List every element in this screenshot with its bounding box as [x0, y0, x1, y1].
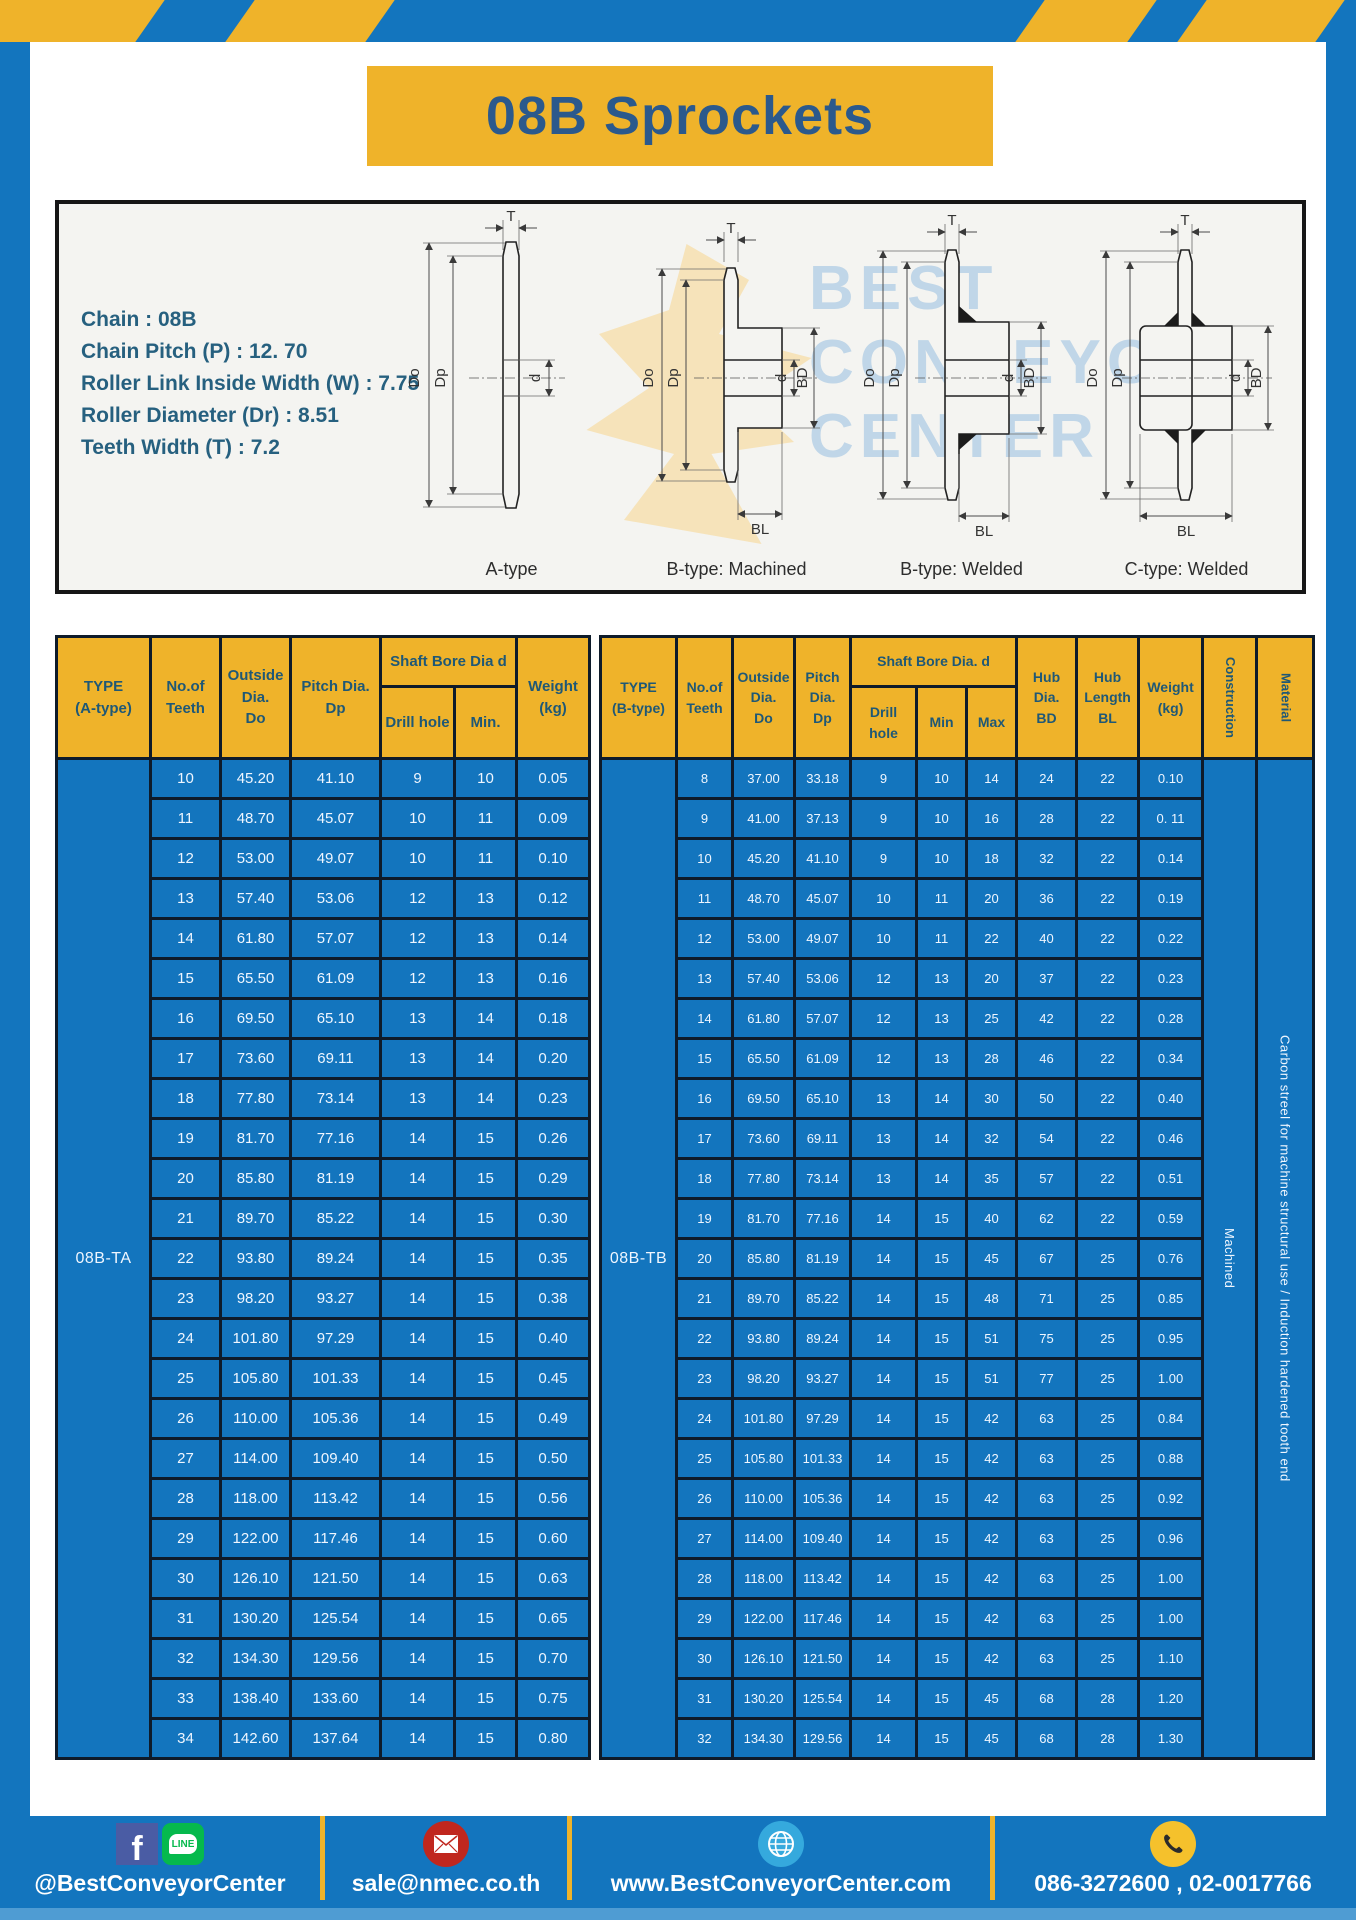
table-cell: 14 [381, 1399, 455, 1439]
table-cell: 14 [455, 1079, 517, 1119]
table-cell: 1.00 [1139, 1599, 1203, 1639]
table-cell: 130.20 [733, 1679, 795, 1719]
table-cell: 27 [151, 1439, 221, 1479]
table-cell: 97.29 [795, 1399, 851, 1439]
table-cell: 22 [1077, 839, 1139, 879]
table-cell: 73.14 [795, 1159, 851, 1199]
table-cell: 63 [1017, 1439, 1077, 1479]
table-cell: 71 [1017, 1279, 1077, 1319]
table-cell: 61.09 [795, 1039, 851, 1079]
table-cell: 33 [151, 1679, 221, 1719]
table-cell: 25 [151, 1359, 221, 1399]
table-cell: 21 [677, 1279, 733, 1319]
table-cell: 0.60 [517, 1519, 590, 1559]
table-cell: 45 [967, 1719, 1017, 1759]
left-frame [0, 42, 30, 1816]
table-cell: 134.30 [221, 1639, 291, 1679]
table-cell: 25 [1077, 1359, 1139, 1399]
table-cell: 137.64 [291, 1719, 381, 1759]
table-cell: 0.23 [517, 1079, 590, 1119]
table-cell: 22 [1077, 1199, 1139, 1239]
table-cell: 63 [1017, 1479, 1077, 1519]
table-cell: 93.80 [221, 1239, 291, 1279]
col-header-teeth: No.of Teeth [151, 637, 221, 759]
table-cell: 42 [1017, 999, 1077, 1039]
table-cell: 0.10 [1139, 759, 1203, 799]
table-cell: 14 [851, 1519, 917, 1559]
table-cell: 134.30 [733, 1719, 795, 1759]
table-cell: 126.10 [221, 1559, 291, 1599]
table-cell: 14 [851, 1679, 917, 1719]
table-cell: 15 [917, 1279, 967, 1319]
table-cell: 42 [967, 1599, 1017, 1639]
table-cell: 0.88 [1139, 1439, 1203, 1479]
phone-numbers[interactable]: 086-3272600 , 02-0017766 [1034, 1870, 1312, 1897]
c-type-welded-diagram: T Do Dp [1074, 210, 1299, 590]
table-cell: 25 [1077, 1599, 1139, 1639]
table-cell: 28 [677, 1559, 733, 1599]
table-cell: 113.42 [795, 1559, 851, 1599]
col-header-outside-dia: Outside Dia. Do [221, 637, 291, 759]
table-cell: 25 [1077, 1319, 1139, 1359]
table-cell: 15 [917, 1199, 967, 1239]
table-cell: 62 [1017, 1199, 1077, 1239]
table-cell: 19 [151, 1119, 221, 1159]
table-cell: 42 [967, 1559, 1017, 1599]
table-cell: 15 [455, 1599, 517, 1639]
table-cell: 37 [1017, 959, 1077, 999]
b-type-welded-diagram: T Do Dp [849, 210, 1074, 590]
table-cell: 121.50 [291, 1559, 381, 1599]
table-cell: 69.11 [291, 1039, 381, 1079]
table-cell: 42 [967, 1439, 1017, 1479]
table-cell: 14 [851, 1439, 917, 1479]
table-cell: 0.40 [1139, 1079, 1203, 1119]
col-header-max: Max [967, 687, 1017, 759]
table-cell: 10 [917, 839, 967, 879]
table-cell: 73.14 [291, 1079, 381, 1119]
table-cell: 14 [677, 999, 733, 1039]
table-row: 08B-TB837.0033.189101424220.10MachinedCa… [601, 759, 1314, 799]
table-cell: 30 [151, 1559, 221, 1599]
table-cell: 0.96 [1139, 1519, 1203, 1559]
table-cell: 13 [455, 879, 517, 919]
table-cell: 20 [967, 879, 1017, 919]
table-cell: 25 [677, 1439, 733, 1479]
table-cell: 113.42 [291, 1479, 381, 1519]
table-cell: 85.80 [221, 1159, 291, 1199]
svg-text:T: T [506, 210, 515, 225]
table-cell: 117.46 [795, 1599, 851, 1639]
table-cell: 14 [381, 1119, 455, 1159]
table-cell: 0.26 [517, 1119, 590, 1159]
table-cell: 15 [455, 1199, 517, 1239]
table-row: 08B-TA1045.2041.109100.05 [57, 759, 590, 799]
table-cell: 13 [381, 1039, 455, 1079]
table-cell: 15 [917, 1639, 967, 1679]
svg-text:T: T [947, 212, 956, 229]
table-cell: 14 [917, 1159, 967, 1199]
col-header-drill-hole: Drill hole [381, 687, 455, 759]
table-cell: 105.36 [795, 1479, 851, 1519]
table-cell: 14 [851, 1239, 917, 1279]
stripe [225, 0, 394, 42]
table-cell: 14 [851, 1559, 917, 1599]
table-cell: 12 [381, 919, 455, 959]
table-cell: 42 [967, 1519, 1017, 1559]
table-cell: 0.45 [517, 1359, 590, 1399]
table-cell: 50 [1017, 1079, 1077, 1119]
table-cell: 15 [455, 1519, 517, 1559]
table-cell: 0.65 [517, 1599, 590, 1639]
table-cell: 77.80 [733, 1159, 795, 1199]
table-cell: 25 [1077, 1519, 1139, 1559]
table-cell: 15 [917, 1319, 967, 1359]
table-cell: 110.00 [221, 1399, 291, 1439]
table-cell: 0.40 [517, 1319, 590, 1359]
table-cell: 22 [151, 1239, 221, 1279]
table-cell: 57 [1017, 1159, 1077, 1199]
social-section: f LINE @BestConveyorCenter [0, 1816, 320, 1908]
table-cell: 15 [455, 1719, 517, 1759]
col-header-min: Min. [455, 687, 517, 759]
table-cell: 26 [677, 1479, 733, 1519]
table-cell: 15 [455, 1159, 517, 1199]
table-cell: 81.70 [733, 1199, 795, 1239]
svg-text:Do: Do [1084, 368, 1101, 387]
table-cell: 110.00 [733, 1479, 795, 1519]
table-cell: 15 [917, 1479, 967, 1519]
svg-text:Dp: Dp [432, 368, 449, 387]
table-cell: 1.00 [1139, 1359, 1203, 1399]
svg-text:d: d [773, 374, 790, 382]
table-cell: 105.36 [291, 1399, 381, 1439]
table-cell: 118.00 [733, 1559, 795, 1599]
table-cell: 65.50 [733, 1039, 795, 1079]
table-cell: 0.30 [517, 1199, 590, 1239]
table-cell: 81.19 [291, 1159, 381, 1199]
table-cell: 12 [851, 999, 917, 1039]
table-cell: 63 [1017, 1399, 1077, 1439]
social-handle[interactable]: @BestConveyorCenter [34, 1870, 285, 1897]
table-cell: 0.70 [517, 1639, 590, 1679]
table-cell: 22 [1077, 759, 1139, 799]
col-header-type: TYPE (A-type) [57, 637, 151, 759]
table-cell: 10 [851, 879, 917, 919]
chain-specs: Chain : 08B Chain Pitch (P) : 12. 70 Rol… [81, 304, 419, 464]
phone-icon [1150, 1821, 1196, 1867]
table-cell: 117.46 [291, 1519, 381, 1559]
table-cell: 37.00 [733, 759, 795, 799]
table-cell: 14 [381, 1159, 455, 1199]
table-cell: 114.00 [733, 1519, 795, 1559]
table-cell: 18 [151, 1079, 221, 1119]
website-url[interactable]: www.BestConveyorCenter.com [611, 1870, 951, 1897]
table-cell: 65.50 [221, 959, 291, 999]
table-cell: 109.40 [291, 1439, 381, 1479]
table-cell: 89.24 [795, 1319, 851, 1359]
table-cell: 138.40 [221, 1679, 291, 1719]
table-cell: 34 [151, 1719, 221, 1759]
table-cell: 26 [151, 1399, 221, 1439]
table-cell: 133.60 [291, 1679, 381, 1719]
table-cell: 22 [967, 919, 1017, 959]
table-cell: 23 [677, 1359, 733, 1399]
table-cell: 14 [381, 1479, 455, 1519]
table-cell: 14 [381, 1359, 455, 1399]
col-header-weight: Weight (kg) [1139, 637, 1203, 759]
table-cell: 14 [381, 1319, 455, 1359]
col-header-type: TYPE (B-type) [601, 637, 677, 759]
diagram-label: B-type: Machined [624, 559, 849, 580]
table-cell: 51 [967, 1359, 1017, 1399]
table-cell: 61.09 [291, 959, 381, 999]
table-cell: 22 [1077, 799, 1139, 839]
table-cell: 0.19 [1139, 879, 1203, 919]
diagram-panel: BEST CONVEYOR CENTER Chain : 08B Chain P… [55, 200, 1306, 594]
table-cell: 31 [677, 1679, 733, 1719]
bottom-strip [0, 1908, 1356, 1920]
page-title: 08B Sprockets [367, 66, 993, 166]
table-cell: 53.00 [733, 919, 795, 959]
table-cell: 81.19 [795, 1239, 851, 1279]
table-cell: 13 [381, 1079, 455, 1119]
table-cell: 42 [967, 1399, 1017, 1439]
table-cell: 10 [917, 799, 967, 839]
table-cell: 14 [381, 1719, 455, 1759]
table-cell: 9 [851, 839, 917, 879]
table-cell: 49.07 [795, 919, 851, 959]
diagram-label: B-type: Welded [849, 559, 1074, 580]
table-cell: 130.20 [221, 1599, 291, 1639]
table-cell: 40 [967, 1199, 1017, 1239]
table-cell: 0.50 [517, 1439, 590, 1479]
table-cell: 14 [455, 1039, 517, 1079]
table-cell: 51 [967, 1319, 1017, 1359]
table-cell: 54 [1017, 1119, 1077, 1159]
svg-text:d: d [527, 374, 544, 382]
stripe [1177, 0, 1344, 42]
table-cell: 0. 11 [1139, 799, 1203, 839]
table-cell: 15 [677, 1039, 733, 1079]
table-cell: 0.51 [1139, 1159, 1203, 1199]
table-cell: 19 [677, 1199, 733, 1239]
table-cell: 15 [455, 1639, 517, 1679]
table-cell: 15 [917, 1599, 967, 1639]
table-cell: 142.60 [221, 1719, 291, 1759]
table-cell: 0.18 [517, 999, 590, 1039]
table-cell: 32 [1017, 839, 1077, 879]
website-section: www.BestConveyorCenter.com [572, 1816, 990, 1908]
svg-text:BD: BD [1021, 367, 1038, 388]
table-cell: 14 [381, 1639, 455, 1679]
table-cell: 0.59 [1139, 1199, 1203, 1239]
table-cell: 129.56 [291, 1639, 381, 1679]
col-header-shaft-bore: Shaft Bore Dia. d [851, 637, 1017, 687]
table-cell: 15 [917, 1559, 967, 1599]
svg-text:Do: Do [640, 368, 657, 387]
svg-text:Dp: Dp [665, 368, 682, 387]
table-cell: 25 [1077, 1399, 1139, 1439]
table-cell: 15 [455, 1279, 517, 1319]
table-cell: 81.70 [221, 1119, 291, 1159]
email-address[interactable]: sale@nmec.co.th [352, 1870, 541, 1897]
table-cell: 42 [967, 1639, 1017, 1679]
table-cell: 41.10 [795, 839, 851, 879]
table-cell: 14 [851, 1399, 917, 1439]
table-cell: 15 [917, 1719, 967, 1759]
table-cell: 69.50 [733, 1079, 795, 1119]
table-cell: 14 [381, 1439, 455, 1479]
table-cell: 28 [1077, 1719, 1139, 1759]
table-cell: 93.27 [291, 1279, 381, 1319]
table-cell: 25 [1077, 1559, 1139, 1599]
a-type-diagram: T Do Dp d [399, 210, 624, 590]
table-cell: 53.00 [221, 839, 291, 879]
table-cell: 36 [1017, 879, 1077, 919]
table-cell: 22 [1077, 1039, 1139, 1079]
table-cell: 14 [917, 1119, 967, 1159]
table-cell: 57.40 [733, 959, 795, 999]
table-cell: 11 [455, 839, 517, 879]
email-section: sale@nmec.co.th [325, 1816, 567, 1908]
table-cell: 14 [851, 1479, 917, 1519]
table-cell: 69.11 [795, 1119, 851, 1159]
table-cell: 14 [851, 1639, 917, 1679]
table-cell: 9 [677, 799, 733, 839]
table-cell: 9 [381, 759, 455, 799]
spec-line: Roller Diameter (Dr) : 8.51 [81, 400, 419, 432]
table-cell: 13 [151, 879, 221, 919]
table-cell: 28 [967, 1039, 1017, 1079]
line-icon[interactable]: LINE [162, 1823, 204, 1865]
col-header-min: Min [917, 687, 967, 759]
table-cell: 114.00 [221, 1439, 291, 1479]
table-cell: 105.80 [221, 1359, 291, 1399]
table-cell: 0.49 [517, 1399, 590, 1439]
table-cell: 17 [151, 1039, 221, 1079]
email-icon [423, 1821, 469, 1867]
table-cell: 25 [967, 999, 1017, 1039]
table-cell: 28 [151, 1479, 221, 1519]
table-cell: 77 [1017, 1359, 1077, 1399]
svg-text:Dp: Dp [886, 368, 903, 387]
table-cell: 0.56 [517, 1479, 590, 1519]
table-cell: 16 [151, 999, 221, 1039]
table-cell: 14 [851, 1599, 917, 1639]
table-cell: 0.09 [517, 799, 590, 839]
table-cell: 20 [677, 1239, 733, 1279]
table-cell: 11 [677, 879, 733, 919]
table-cell: 22 [1077, 999, 1139, 1039]
sprocket-table-b-type: TYPE (B-type) No.of Teeth Outside Dia. D… [599, 635, 1315, 1760]
table-cell: 1.30 [1139, 1719, 1203, 1759]
table-cell: 0.34 [1139, 1039, 1203, 1079]
table-cell: 98.20 [221, 1279, 291, 1319]
facebook-icon[interactable]: f [116, 1823, 158, 1865]
table-cell: 125.54 [291, 1599, 381, 1639]
table-cell: 14 [851, 1359, 917, 1399]
table-cell: 13 [677, 959, 733, 999]
table-cell: 32 [677, 1719, 733, 1759]
table-cell: 93.27 [795, 1359, 851, 1399]
table-cell: 40 [1017, 919, 1077, 959]
svg-text:Do: Do [407, 368, 423, 387]
svg-text:BD: BD [794, 367, 811, 388]
table-cell: 68 [1017, 1679, 1077, 1719]
table-cell: 15 [455, 1679, 517, 1719]
table-cell: 105.80 [733, 1439, 795, 1479]
table-cell: 89.70 [733, 1279, 795, 1319]
table-cell: 10 [851, 919, 917, 959]
col-header-material: Material [1257, 637, 1314, 759]
table-cell: 57.40 [221, 879, 291, 919]
table-cell: 122.00 [733, 1599, 795, 1639]
col-header-weight: Weight (kg) [517, 637, 590, 759]
table-cell: 8 [677, 759, 733, 799]
table-cell: 63 [1017, 1519, 1077, 1559]
table-cell: 15 [455, 1359, 517, 1399]
table-cell: 0.12 [517, 879, 590, 919]
table-cell: 49.07 [291, 839, 381, 879]
table-cell: 65.10 [291, 999, 381, 1039]
col-header-hub-dia: Hub Dia. BD [1017, 637, 1077, 759]
table-cell: 22 [1077, 1159, 1139, 1199]
table-cell: 10 [677, 839, 733, 879]
contact-footer: f LINE @BestConveyorCenter sale@ [0, 1816, 1356, 1908]
table-cell: 29 [151, 1519, 221, 1559]
spec-line: Roller Link Inside Width (W) : 7.75 [81, 368, 419, 400]
col-header-construction: Construction [1203, 637, 1257, 759]
material-value: Carbon streel for machine structural use… [1257, 759, 1314, 1759]
table-cell: 77.16 [795, 1199, 851, 1239]
table-cell: 15 [455, 1479, 517, 1519]
svg-text:BL: BL [1176, 523, 1194, 540]
table-cell: 45.20 [221, 759, 291, 799]
table-cell: 45.07 [795, 879, 851, 919]
line-icon-label: LINE [169, 1834, 197, 1854]
table-cell: 0.63 [517, 1559, 590, 1599]
table-cell: 85.22 [795, 1279, 851, 1319]
table-cell: 11 [917, 919, 967, 959]
table-cell: 0.80 [517, 1719, 590, 1759]
table-cell: 15 [917, 1399, 967, 1439]
table-cell: 25 [1077, 1439, 1139, 1479]
table-cell: 41.00 [733, 799, 795, 839]
table-cell: 27 [677, 1519, 733, 1559]
table-cell: 15 [917, 1439, 967, 1479]
table-cell: 42 [967, 1479, 1017, 1519]
svg-text:d: d [1227, 374, 1244, 382]
table-cell: 68 [1017, 1719, 1077, 1759]
table-cell: 12 [851, 959, 917, 999]
col-header-drill-hole: Drill hole [851, 687, 917, 759]
table-cell: 18 [677, 1159, 733, 1199]
table-cell: 125.54 [795, 1679, 851, 1719]
table-cell: 14 [381, 1279, 455, 1319]
svg-text:d: d [1000, 374, 1017, 382]
table-cell: 14 [381, 1679, 455, 1719]
stripe [0, 0, 165, 42]
svg-text:T: T [726, 220, 735, 237]
table-cell: 45 [967, 1239, 1017, 1279]
table-cell: 15 [455, 1239, 517, 1279]
table-cell: 24 [677, 1399, 733, 1439]
table-cell: 48.70 [221, 799, 291, 839]
table-cell: 28 [1077, 1679, 1139, 1719]
svg-text:T: T [1180, 212, 1189, 229]
table-cell: 0.38 [517, 1279, 590, 1319]
